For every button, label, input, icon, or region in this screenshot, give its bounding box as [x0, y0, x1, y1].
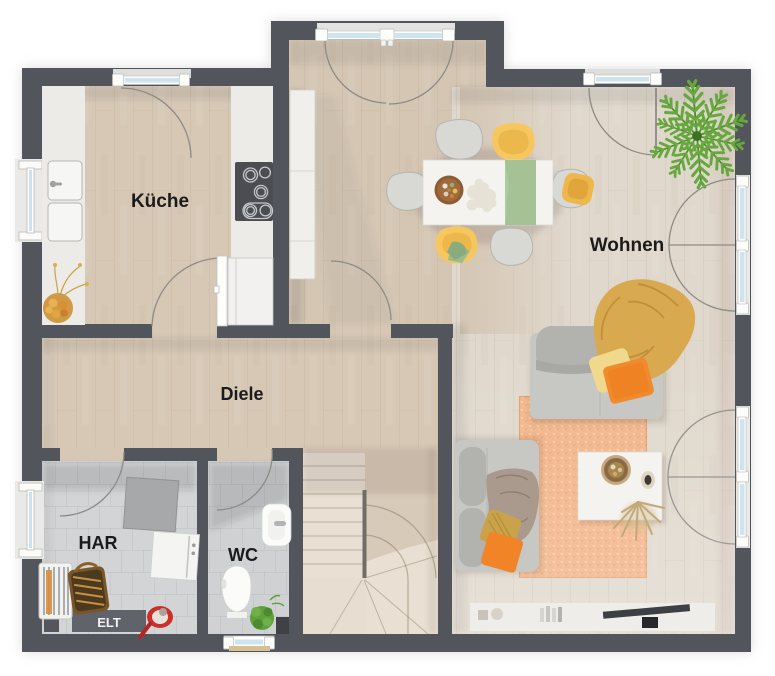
svg-text:HAR: HAR	[79, 533, 118, 553]
svg-text:WC: WC	[228, 545, 258, 565]
svg-text:Diele: Diele	[220, 384, 263, 404]
svg-text:Wohnen: Wohnen	[590, 235, 665, 256]
svg-text:Küche: Küche	[131, 191, 189, 212]
svg-text:ELT: ELT	[97, 615, 121, 630]
